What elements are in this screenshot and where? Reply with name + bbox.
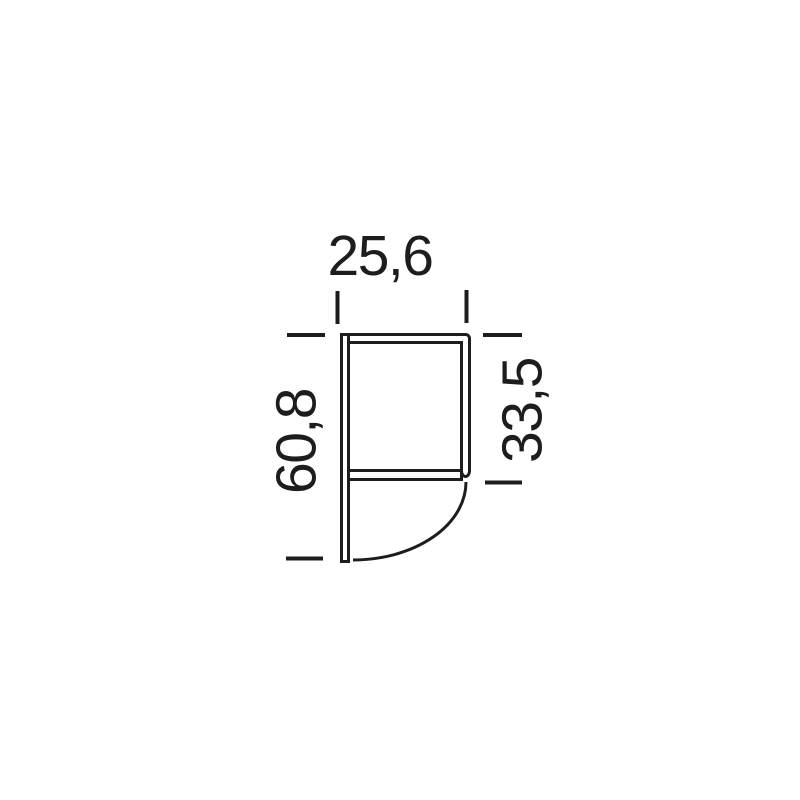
top-rail-and-right-panel — [349, 335, 470, 477]
left-side-panel — [342, 335, 349, 562]
shelf — [349, 471, 462, 480]
upper-height-dimension-label: 33,5 — [491, 358, 555, 463]
dimension-drawing: 25,6 60,8 33,5 — [0, 0, 800, 800]
height-dimension-label: 60,8 — [265, 389, 329, 494]
drawing-canvas: 25,6 60,8 33,5 — [0, 0, 800, 800]
curved-front-arc — [353, 482, 466, 560]
cabinet-outline — [342, 335, 470, 562]
width-dimension-label: 25,6 — [328, 224, 433, 288]
